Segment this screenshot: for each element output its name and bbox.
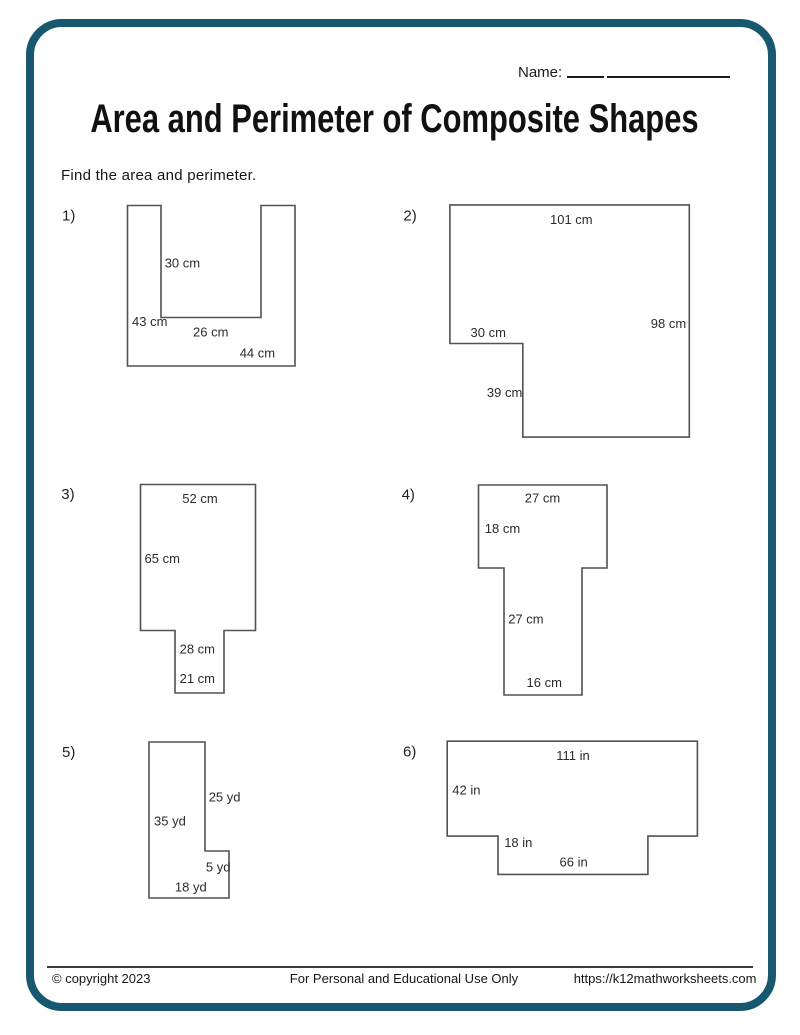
svg-text:5 yd: 5 yd: [206, 859, 231, 874]
svg-text:1): 1): [62, 208, 75, 225]
svg-text:30 cm: 30 cm: [165, 255, 200, 270]
svg-text:42 in: 42 in: [452, 782, 480, 797]
svg-text:18 yd: 18 yd: [175, 880, 207, 895]
svg-text:39 cm: 39 cm: [487, 385, 522, 400]
svg-text:26 cm: 26 cm: [193, 325, 228, 340]
svg-text:43 cm: 43 cm: [132, 314, 167, 329]
svg-text:66 in: 66 in: [560, 854, 588, 869]
svg-text:35 yd: 35 yd: [154, 813, 186, 828]
svg-text:18 in: 18 in: [504, 835, 532, 850]
svg-text:27 cm: 27 cm: [508, 612, 543, 627]
svg-text:3): 3): [61, 486, 74, 503]
svg-text:27 cm: 27 cm: [525, 491, 560, 506]
svg-text:101 cm: 101 cm: [550, 212, 593, 227]
svg-text:5): 5): [62, 744, 75, 761]
svg-text:98 cm: 98 cm: [651, 316, 686, 331]
svg-text:18 cm: 18 cm: [485, 521, 520, 536]
svg-text:16 cm: 16 cm: [527, 675, 562, 690]
svg-text:25 yd: 25 yd: [209, 790, 241, 805]
svg-text:6): 6): [403, 743, 416, 760]
svg-text:2): 2): [403, 208, 416, 225]
svg-text:111 in: 111 in: [556, 748, 590, 763]
svg-text:52 cm: 52 cm: [182, 491, 217, 506]
svg-text:65 cm: 65 cm: [145, 551, 180, 566]
svg-text:30 cm: 30 cm: [471, 325, 506, 340]
svg-text:28 cm: 28 cm: [180, 642, 215, 657]
svg-text:4): 4): [402, 486, 415, 503]
svg-text:21 cm: 21 cm: [180, 671, 215, 686]
svg-text:44 cm: 44 cm: [240, 346, 275, 361]
